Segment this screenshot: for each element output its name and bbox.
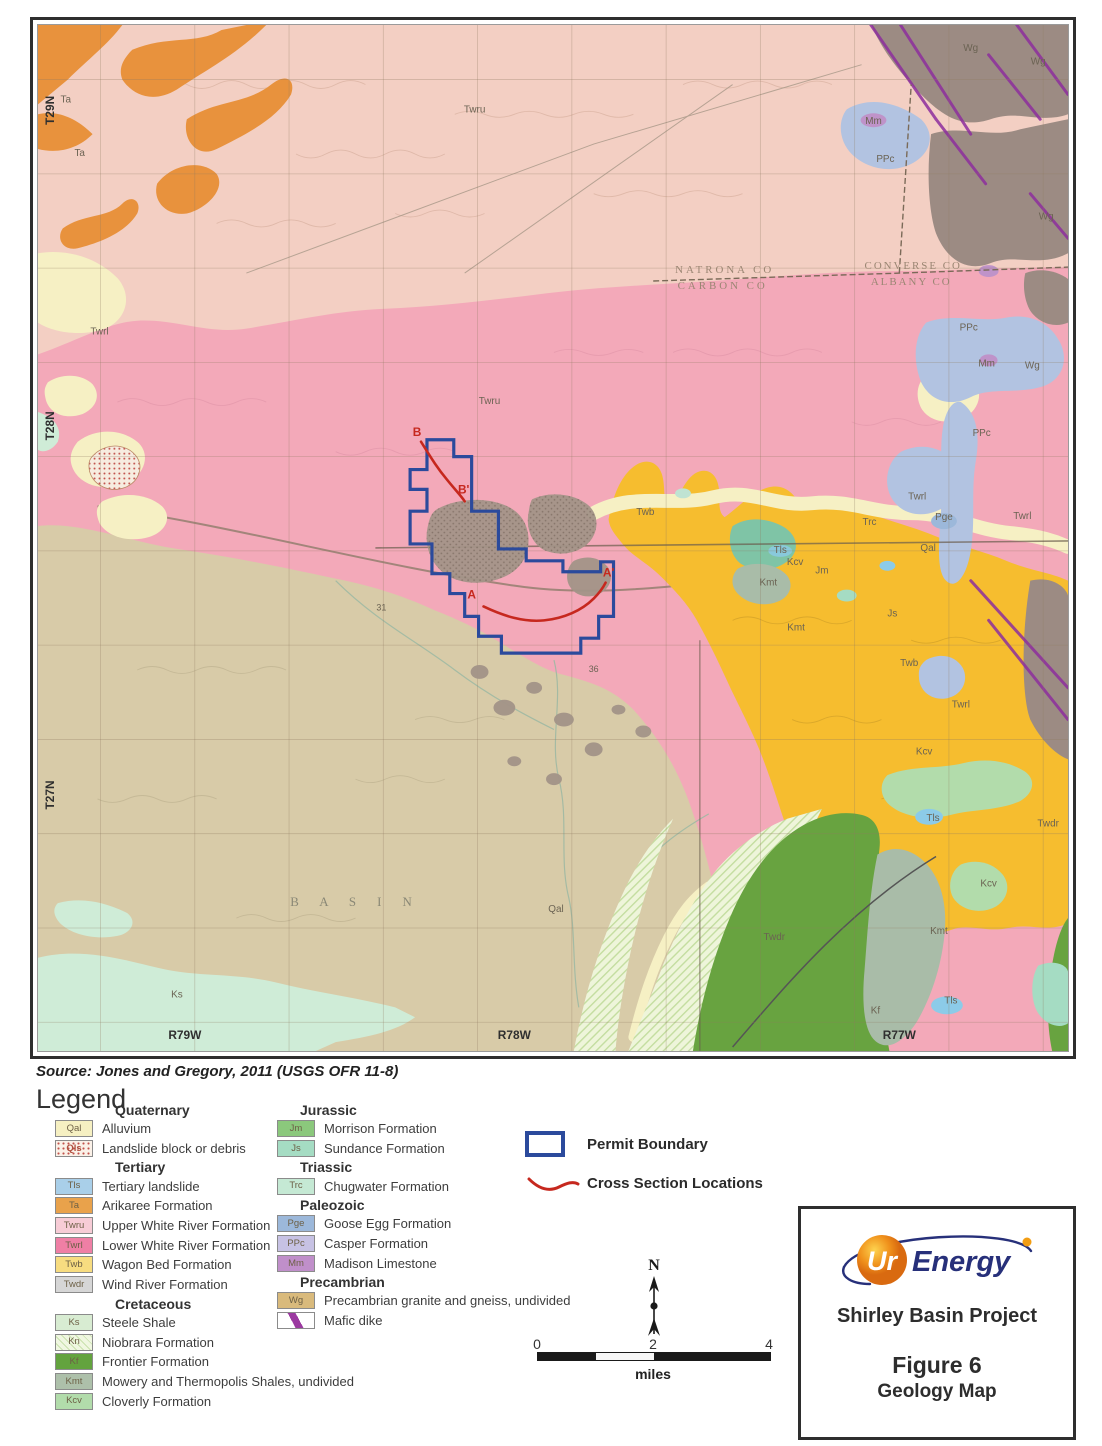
legend-item-label: Goose Egg Formation — [324, 1216, 451, 1231]
legend-item-label: Mafic dike — [324, 1313, 383, 1328]
map-label: Twb — [900, 658, 919, 669]
map-label: T28N — [43, 411, 57, 440]
legend-swatch: Wg — [277, 1292, 315, 1309]
legend-swatch-code: Wg — [289, 1296, 303, 1306]
figure-page: T29NT28NT27NR79WR78WR77WNATRONA COCARBON… — [0, 0, 1102, 1446]
map-label: Twru — [464, 104, 485, 115]
legend-item-label: Upper White River Formation — [102, 1218, 270, 1233]
scale-bar: 0 2 4 miles — [533, 1336, 773, 1382]
legend-item-label: Landslide block or debris — [102, 1141, 246, 1156]
legend-swatch: Jm — [277, 1120, 315, 1137]
scale-ticks: 0 2 4 — [533, 1336, 773, 1352]
legend-swatch-code: Ks — [68, 1318, 79, 1328]
map-label: Kf — [871, 1005, 881, 1016]
legend-swatch: Kmt — [55, 1373, 93, 1390]
map-label: A' — [603, 566, 615, 580]
logo-orbit-dot — [1022, 1238, 1031, 1247]
legend-item: PgeGoose Egg Formation — [272, 1214, 572, 1234]
map-label: Kcv — [980, 878, 997, 889]
legend-swatch: Kn — [55, 1334, 93, 1351]
map-label: Twdr — [764, 932, 786, 943]
legend-swatch: Trc — [277, 1178, 315, 1195]
map-label: CONVERSE CO — [865, 260, 962, 272]
map-label: Tls — [944, 995, 957, 1006]
legend-swatch-code: Jm — [290, 1124, 303, 1134]
cross-section-label: Cross Section Locations — [587, 1175, 763, 1192]
legend-swatch: Kf — [55, 1353, 93, 1370]
legend-item-label: Arikaree Formation — [102, 1198, 213, 1213]
legend-swatch-code: Qal — [67, 1124, 82, 1134]
legend-item-label: Frontier Formation — [102, 1354, 209, 1369]
map-label: Wg — [963, 43, 978, 54]
legend-swatch-code: PPc — [287, 1239, 304, 1249]
map-label: Js — [887, 608, 897, 619]
legend-item-label: Alluvium — [102, 1121, 151, 1136]
legend-item: MmMadison Limestone — [272, 1253, 572, 1273]
map-label: Twrl — [952, 700, 970, 711]
legend-swatch: Twdr — [55, 1276, 93, 1293]
legend-item-label: Mowery and Thermopolis Shales, undivided — [102, 1374, 354, 1389]
map-label: Qal — [548, 904, 563, 915]
legend-swatch-code: Tls — [68, 1181, 81, 1191]
legend-item-label: Wagon Bed Formation — [102, 1257, 232, 1272]
map-label: Wg — [1025, 360, 1040, 371]
map-label: R79W — [168, 1028, 202, 1042]
legend-swatch-code: Js — [291, 1144, 301, 1154]
map-label: Wg — [1031, 57, 1046, 68]
legend-item-label: Wind River Formation — [102, 1277, 228, 1292]
legend-swatch: Twrl — [55, 1237, 93, 1254]
legend-item: KfFrontier Formation — [40, 1352, 330, 1372]
map-label: Ta — [74, 148, 85, 159]
title-block: Ur Energy Shirley Basin Project Figure 6… — [798, 1206, 1076, 1440]
legend-item-label: Casper Formation — [324, 1236, 428, 1251]
legend-item-label: Chugwater Formation — [324, 1179, 449, 1194]
figure-number: Figure 6 — [892, 1352, 981, 1379]
map-label: T27N — [43, 780, 57, 809]
north-label: N — [648, 1257, 660, 1274]
map-label: Twb — [636, 507, 655, 518]
map-label: B A S I N — [290, 895, 420, 909]
logo-prefix-text: Ur — [866, 1246, 897, 1276]
legend-swatch: Mm — [277, 1255, 315, 1272]
source-note: Source: Jones and Gregory, 2011 (USGS OF… — [36, 1063, 398, 1080]
legend-swatch-code: Twrl — [65, 1241, 82, 1251]
map-label: R77W — [883, 1028, 917, 1042]
legend-swatch-code: Trc — [289, 1181, 302, 1191]
legend-swatch-code: Kcv — [66, 1396, 82, 1406]
region-qls — [89, 446, 140, 489]
legend-swatch-code: Pge — [288, 1219, 305, 1229]
map-label: Kmt — [760, 578, 778, 589]
legend-swatch: Twru — [55, 1217, 93, 1234]
legend-swatch: Qal — [55, 1120, 93, 1137]
legend-swatch: Kcv — [55, 1393, 93, 1410]
legend-swatch-code: Mm — [288, 1259, 304, 1269]
legend-item-label: Niobrara Formation — [102, 1335, 214, 1350]
legend-item: KmtMowery and Thermopolis Shales, undivi… — [40, 1372, 330, 1392]
map-label: 36 — [589, 664, 599, 674]
legend-item-label: Sundance Formation — [324, 1141, 445, 1156]
map-label: 31 — [376, 602, 386, 612]
map-label: NATRONA CO — [675, 264, 774, 276]
geology-map: T29NT28NT27NR79WR78WR77WNATRONA COCARBON… — [38, 25, 1068, 1051]
scale-tick-0: 0 — [533, 1336, 541, 1352]
map-label: Kcv — [916, 746, 933, 757]
legend-item: KnNiobrara Formation — [40, 1332, 330, 1352]
legend-swatch-code: Kf — [70, 1357, 79, 1367]
logo-suffix-text: Energy — [912, 1246, 1012, 1278]
map-label: Trc — [863, 517, 877, 528]
map-label: Twrl — [90, 327, 108, 338]
map-label: Jm — [815, 566, 828, 577]
scale-tick-4: 4 — [765, 1336, 773, 1352]
cross-section-swatch — [525, 1171, 581, 1195]
map-label: Twrl — [1013, 511, 1031, 522]
map-label: Tls — [774, 545, 787, 556]
legend-swatch: Js — [277, 1140, 315, 1157]
legend-item-label: Madison Limestone — [324, 1256, 437, 1271]
map-label: Kmt — [787, 622, 805, 633]
map-label: PPc — [960, 323, 978, 334]
legend-item-label: Morrison Formation — [324, 1121, 437, 1136]
legend-swatch: Twb — [55, 1256, 93, 1273]
legend-swatch: PPc — [277, 1235, 315, 1252]
legend-item: KcvCloverly Formation — [40, 1391, 330, 1411]
figure-subtitle: Geology Map — [877, 1381, 996, 1403]
project-name: Shirley Basin Project — [837, 1305, 1037, 1328]
map-label: PPc — [973, 428, 991, 439]
map-label: B — [413, 425, 422, 439]
map-label: Kcv — [787, 557, 804, 568]
map-label: Tls — [926, 813, 939, 824]
map-label: Twrl — [908, 491, 926, 502]
overlay-legend: Permit Boundary Cross Section Locations — [525, 1131, 763, 1209]
map-label: Mm — [865, 116, 882, 127]
legend-swatch-code: Qls — [66, 1144, 81, 1154]
legend-item: Mafic dike — [272, 1311, 572, 1331]
map-frame: T29NT28NT27NR79WR78WR77WNATRONA COCARBON… — [30, 17, 1076, 1059]
legend-item: PPcCasper Formation — [272, 1234, 572, 1254]
legend-item-label: Cloverly Formation — [102, 1394, 211, 1409]
scale-tick-2: 2 — [649, 1336, 657, 1352]
map-label: PPc — [876, 154, 894, 165]
legend-era-heading: Jurassic — [272, 1101, 572, 1119]
ur-energy-logo: Ur Energy — [830, 1225, 1045, 1291]
legend-item: WgPrecambrian granite and gneiss, undivi… — [272, 1291, 572, 1311]
legend-item-label: Precambrian granite and gneiss, undivide… — [324, 1293, 570, 1308]
permit-boundary-swatch — [525, 1131, 565, 1157]
map-inner: T29NT28NT27NR79WR78WR77WNATRONA COCARBON… — [37, 24, 1069, 1052]
legend-swatch-code: Twdr — [64, 1280, 85, 1290]
map-label: T29N — [43, 96, 57, 125]
legend-swatch: Qls — [55, 1140, 93, 1157]
permit-boundary-label: Permit Boundary — [587, 1136, 708, 1153]
legend-swatch-code: Twb — [65, 1260, 82, 1270]
legend-swatch-code: Ta — [69, 1201, 79, 1211]
north-arrow: N — [638, 1256, 672, 1347]
legend-item-label: Lower White River Formation — [102, 1238, 270, 1253]
legend-item-label: Steele Shale — [102, 1315, 176, 1330]
map-label: A — [467, 588, 476, 602]
legend-swatch: Tls — [55, 1178, 93, 1195]
map-label: Wg — [1039, 211, 1054, 222]
legend-swatch-code: Kn — [68, 1337, 80, 1347]
map-label: Ta — [61, 94, 72, 105]
legend-swatch-code: Kmt — [66, 1377, 83, 1387]
map-label: Kmt — [930, 926, 948, 937]
map-label: Pge — [935, 512, 953, 523]
scale-unit-label: miles — [533, 1366, 773, 1382]
cross-section-legend: Cross Section Locations — [525, 1171, 763, 1195]
legend-swatch: Ta — [55, 1197, 93, 1214]
scale-bar-graphic — [537, 1352, 771, 1361]
legend-swatch-code: Twru — [64, 1221, 85, 1231]
map-label: CARBON CO — [678, 280, 768, 292]
map-label: ALBANY CO — [871, 276, 952, 288]
legend-swatch: Pge — [277, 1215, 315, 1232]
legend-swatch: Ks — [55, 1314, 93, 1331]
legend-era-heading: Precambrian — [272, 1273, 572, 1291]
permit-boundary-legend: Permit Boundary — [525, 1131, 763, 1157]
map-label: Mm — [978, 358, 995, 369]
map-label: Twdr — [1037, 819, 1059, 830]
legend-item-label: Tertiary landslide — [102, 1179, 200, 1194]
map-label: Qal — [920, 543, 935, 554]
map-label: B' — [458, 482, 470, 496]
map-label: R78W — [498, 1028, 532, 1042]
map-label: Ks — [171, 989, 183, 1000]
map-label: Twru — [479, 396, 500, 407]
legend-swatch — [277, 1312, 315, 1329]
